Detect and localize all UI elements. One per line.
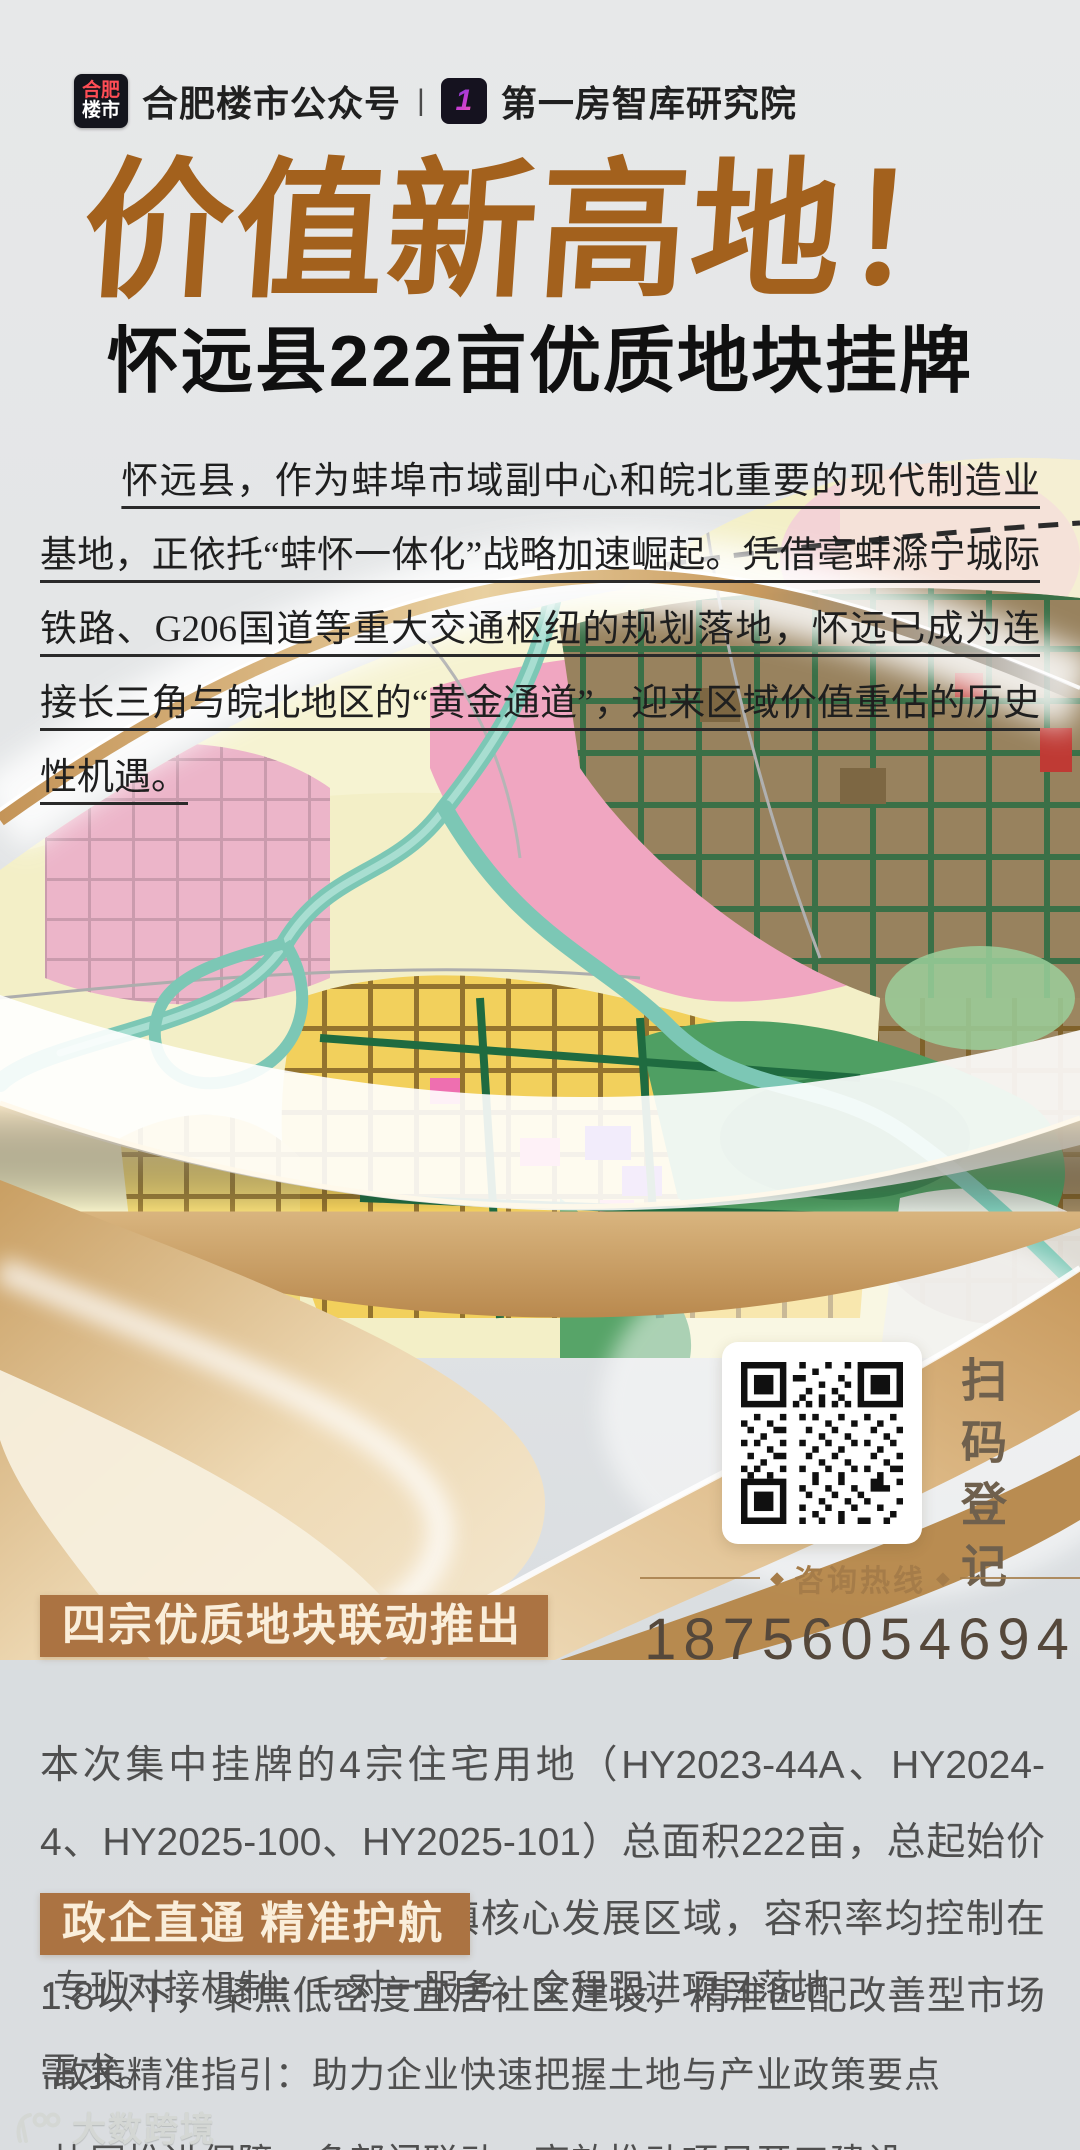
service-bullet: ·专班对接机制：一对一服务，全程跟进项目落地: [40, 1962, 1050, 2014]
watermark: 大数跨境: [12, 2102, 216, 2150]
service-section-title: 政企直通 精准护航: [40, 1893, 470, 1955]
sub-title: 怀远县222亩优质地块挂牌: [0, 302, 1080, 407]
service-bullet: ·政策精准指引：助力企业快速把握土地与产业政策要点: [40, 2049, 1050, 2101]
hotline-divider-left: [640, 1577, 760, 1579]
hotline-block: ◆ 咨询热线 ◆ 18756054694: [640, 1556, 1080, 1673]
watermark-text: 大数跨境: [72, 2102, 216, 2150]
hotline-label: 咨询热线: [794, 1556, 926, 1600]
qr-code[interactable]: [722, 1342, 922, 1544]
main-title: 价值新高地！: [0, 110, 1080, 327]
intro-paragraph: 怀远县，作为蚌埠市域副中心和皖北重要的现代制造业基地，正依托“蚌怀一体化”战略加…: [40, 445, 1040, 815]
diamond-icon: ◆: [770, 1568, 784, 1589]
diamond-icon: ◆: [936, 1568, 950, 1589]
poster-root: 合肥 楼市 合肥楼市公众号 | 1 第一房智库研究院 价值新高地！ 怀远县222…: [0, 0, 1080, 2150]
parcels-section-title: 四宗优质地块联动推出: [40, 1595, 548, 1657]
qr-code-pattern: [741, 1362, 903, 1524]
hotline-phone-number[interactable]: 18756054694: [640, 1606, 1080, 1673]
badge-line1: 合肥: [82, 81, 120, 101]
dashu-kuajing-logo-icon: [12, 2107, 64, 2147]
hotline-divider-right: [960, 1577, 1080, 1579]
